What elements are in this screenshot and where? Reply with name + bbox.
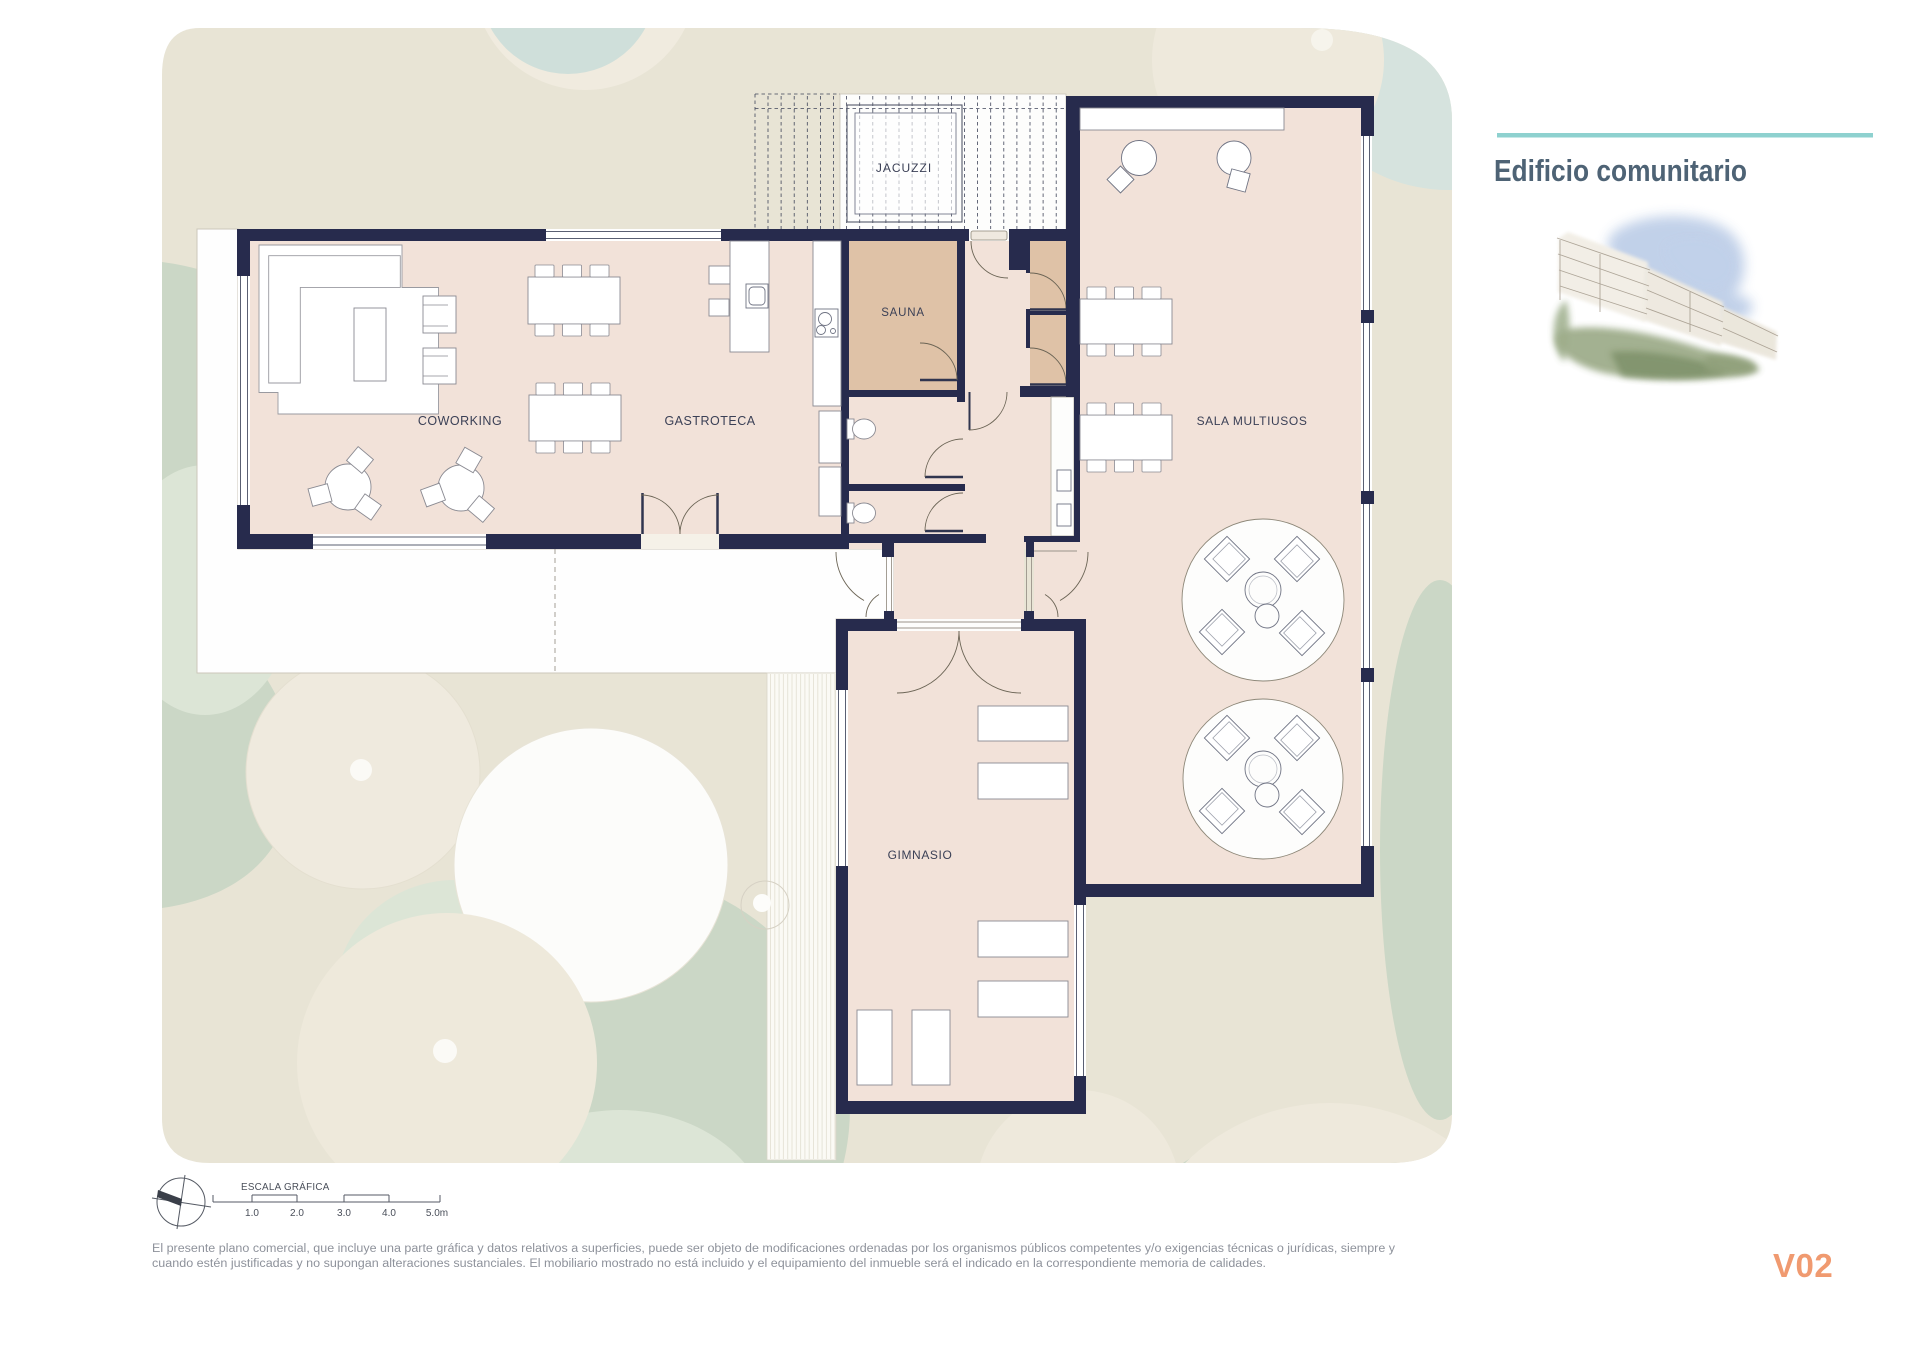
- svg-text:JACUZZI: JACUZZI: [876, 161, 932, 175]
- svg-text:cuando estén justificadas y no: cuando estén justificadas y no supongan …: [152, 1258, 1266, 1270]
- svg-text:3.0: 3.0: [337, 1208, 351, 1219]
- svg-text:SAUNA: SAUNA: [881, 307, 925, 319]
- svg-text:SALA MULTIUSOS: SALA MULTIUSOS: [1197, 414, 1308, 428]
- svg-text:5.0m: 5.0m: [426, 1208, 448, 1219]
- svg-text:GIMNASIO: GIMNASIO: [888, 848, 953, 862]
- svg-text:V02: V02: [1773, 1247, 1833, 1284]
- svg-text:4.0: 4.0: [382, 1208, 396, 1219]
- svg-text:ESCALA GRÁFICA: ESCALA GRÁFICA: [241, 1182, 330, 1193]
- svg-text:1.0: 1.0: [245, 1208, 259, 1219]
- svg-text:COWORKING: COWORKING: [418, 414, 502, 428]
- svg-text:Edificio comunitario: Edificio comunitario: [1494, 153, 1747, 188]
- svg-text:GASTROTECA: GASTROTECA: [664, 414, 755, 428]
- svg-text:2.0: 2.0: [290, 1208, 304, 1219]
- svg-text:El presente plano comercial, q: El presente plano comercial, que incluye…: [152, 1243, 1395, 1255]
